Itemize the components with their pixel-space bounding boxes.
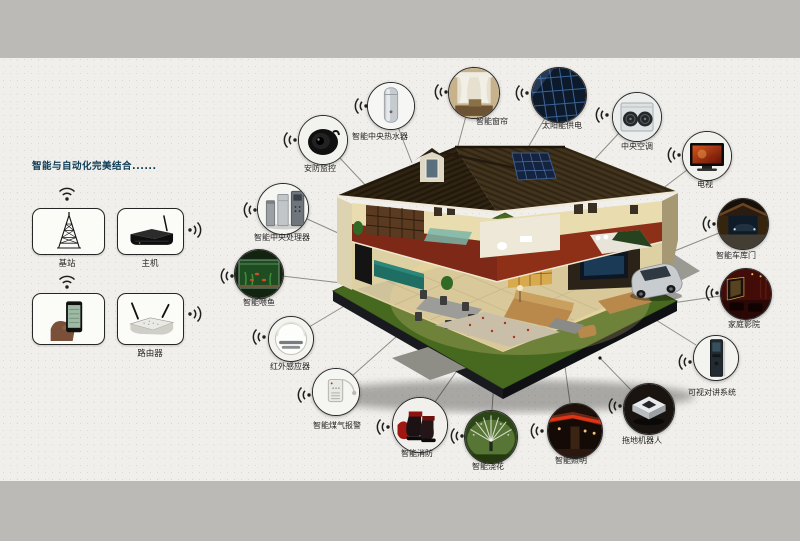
central-processor-icon xyxy=(258,184,308,234)
tv-icon xyxy=(683,132,731,180)
router-box xyxy=(117,293,184,345)
node-label-central-processor: 智能中央处理器 xyxy=(254,233,310,242)
fire-boots-icon xyxy=(393,398,447,452)
router-label: 路由器 xyxy=(137,347,163,359)
host-device-icon xyxy=(123,213,179,251)
node-label-home-theater: 家庭影院 xyxy=(728,320,760,329)
solar-panel-icon xyxy=(532,68,586,122)
panel-title: 智能与自动化完美结合...... xyxy=(32,158,157,172)
node-smart-lighting xyxy=(547,403,603,459)
node-label-video-intercom: 可视对讲系统 xyxy=(688,388,736,397)
node-infrared-sensor xyxy=(268,316,314,362)
smart-home-infographic: 智能与自动化完美结合...... 基站 主机 xyxy=(0,0,800,541)
gas-alarm-icon xyxy=(313,369,359,415)
node-label-fish-feeding: 智能喂鱼 xyxy=(243,298,275,307)
node-label-water-heater: 智能中央热水器 xyxy=(352,132,408,141)
node-label-plant-watering: 智能浇花 xyxy=(472,462,504,471)
node-smart-curtain xyxy=(448,67,500,119)
node-gas-alarm xyxy=(312,368,360,416)
node-central-processor xyxy=(257,183,309,235)
node-label-infrared-sensor: 红外感应器 xyxy=(270,362,310,371)
garage-door-icon xyxy=(718,199,768,249)
smart-curtain-icon xyxy=(449,68,499,118)
bookshelf xyxy=(366,205,424,240)
node-label-garage-door: 智能车库门 xyxy=(716,251,756,260)
left-wall xyxy=(337,197,352,290)
node-label-smart-curtain: 智能窗帘 xyxy=(476,117,508,126)
node-label-tv: 电视 xyxy=(697,180,713,189)
node-label-solar-power: 太阳能供电 xyxy=(542,121,582,130)
sprinkler-icon xyxy=(465,411,517,463)
floor-lamp xyxy=(517,285,523,291)
base-station-label: 基站 xyxy=(58,257,75,269)
base-station-tower-icon xyxy=(43,212,95,252)
node-plant-watering xyxy=(464,410,518,464)
infrared-sensor-icon xyxy=(269,317,313,361)
node-video-intercom xyxy=(693,335,739,381)
node-solar-power xyxy=(531,67,587,123)
smart-home-house-illustration xyxy=(315,147,700,412)
node-label-smart-lighting: 智能照明 xyxy=(555,456,587,465)
node-garage-door xyxy=(717,198,769,250)
home-theater-icon xyxy=(721,269,771,319)
node-fish-feeding xyxy=(234,249,284,299)
smartphone-in-hand-icon xyxy=(40,297,98,341)
base-station-box xyxy=(32,208,105,255)
kitchen-fridge xyxy=(355,243,372,285)
node-fire-protection xyxy=(392,397,448,453)
solar-panel xyxy=(512,153,556,180)
ac-unit-icon xyxy=(613,93,661,141)
node-home-theater xyxy=(720,268,772,320)
smartphone-box xyxy=(32,293,105,345)
node-label-central-ac: 中央空调 xyxy=(621,142,653,151)
water-heater-icon xyxy=(368,83,414,129)
host-label: 主机 xyxy=(141,257,158,269)
host-box xyxy=(117,208,184,255)
node-mopping-robot xyxy=(623,383,675,435)
node-label-mopping-robot: 拖地机器人 xyxy=(622,436,662,445)
mopping-robot-icon xyxy=(624,384,674,434)
video-intercom-icon xyxy=(694,336,738,380)
node-water-heater xyxy=(367,82,415,130)
security-camera-icon xyxy=(299,116,347,164)
aquarium-icon xyxy=(235,250,283,298)
node-tv xyxy=(682,131,732,181)
node-label-fire-protection: 智能消防 xyxy=(401,449,433,458)
node-security-camera xyxy=(298,115,348,165)
node-label-gas-alarm: 智能煤气报警 xyxy=(313,421,361,430)
router-icon xyxy=(123,298,179,340)
node-label-security-camera: 安防监控 xyxy=(304,164,336,173)
plant xyxy=(441,276,453,290)
node-central-ac xyxy=(612,92,662,142)
diagram-overlay xyxy=(0,0,800,541)
smart-lighting-icon xyxy=(548,404,602,458)
